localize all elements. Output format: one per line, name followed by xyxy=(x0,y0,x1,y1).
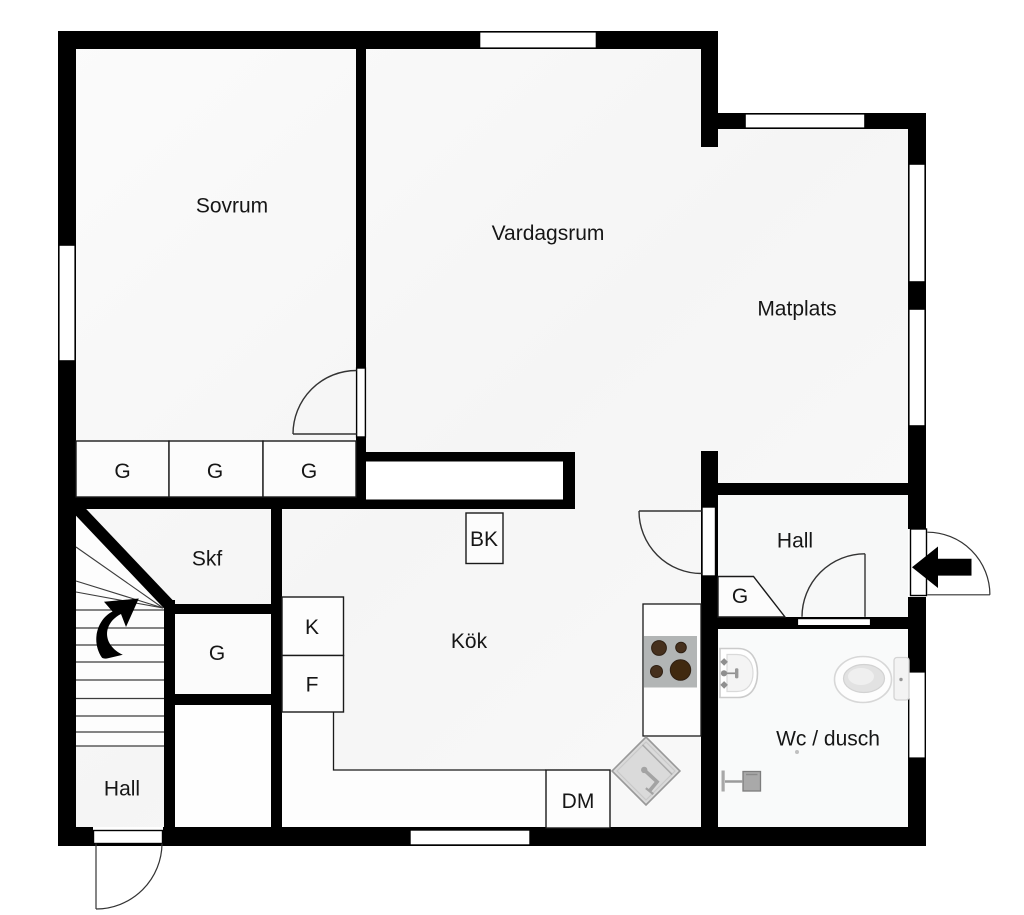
svg-text:F: F xyxy=(306,674,319,697)
svg-text:G: G xyxy=(207,460,223,483)
svg-text:Sovrum: Sovrum xyxy=(196,195,268,218)
svg-text:G: G xyxy=(732,585,748,608)
svg-text:BK: BK xyxy=(470,528,498,551)
svg-text:Wc / dusch: Wc / dusch xyxy=(776,728,880,751)
svg-text:G: G xyxy=(114,460,130,483)
svg-text:Matplats: Matplats xyxy=(757,298,836,321)
svg-text:Hall: Hall xyxy=(104,778,140,801)
svg-text:G: G xyxy=(209,642,225,665)
svg-text:DM: DM xyxy=(562,790,595,813)
svg-text:Vardagsrum: Vardagsrum xyxy=(492,222,605,245)
svg-text:Skf: Skf xyxy=(192,548,223,571)
svg-text:K: K xyxy=(305,616,319,639)
svg-text:Kök: Kök xyxy=(451,630,488,653)
svg-text:G: G xyxy=(301,460,317,483)
svg-text:Hall: Hall xyxy=(777,530,813,553)
